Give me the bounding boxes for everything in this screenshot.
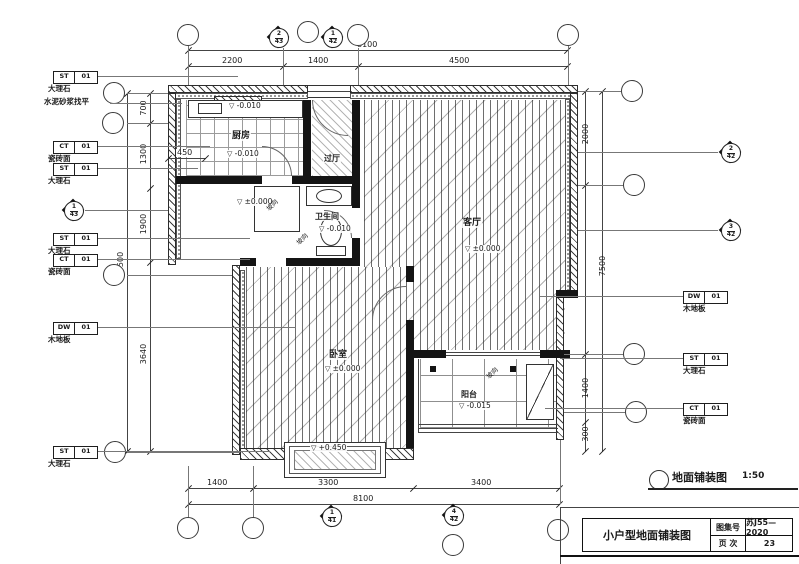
finish-tag-label: 大理石 (48, 460, 71, 468)
dim-left-3: 1900 (140, 208, 148, 240)
axis-bubble (177, 517, 199, 539)
dim-line-bottom-inner (188, 488, 560, 489)
section-marker-bottom-b: 442 (441, 503, 465, 527)
axis-line (127, 452, 240, 453)
finish-tag: CT01 (683, 403, 728, 416)
room-label-hall: 过厅 (323, 155, 341, 163)
wall-kitchen-bath-right (292, 176, 360, 184)
caption-scale: 1:50 (742, 471, 764, 481)
caption-underline (648, 488, 798, 490)
toilet-tank (316, 246, 346, 256)
axis-line (564, 412, 625, 413)
wall-kitchen-bath-left (176, 176, 262, 184)
finish-tag-label: 大理石 (683, 367, 706, 375)
dim-left-2: 1300 (140, 138, 148, 170)
dim-right-3: 300 (582, 418, 590, 450)
dim-right-1: 2000 (582, 118, 590, 150)
finish-tag-label: 木地板 (683, 305, 706, 313)
axis-bubble (623, 174, 645, 196)
page-value: 23 (746, 536, 793, 551)
balcony-rail-1 (418, 424, 558, 425)
dim-left-4: 3640 (140, 338, 148, 370)
note-leveling: 水泥砂浆找平 (44, 98, 89, 106)
axis-bubble (557, 24, 579, 46)
finish-tag: CT01 (53, 254, 98, 267)
tag-leader (98, 238, 250, 239)
finish-tag: DW01 (683, 291, 728, 304)
section-marker-top-b: 142 (320, 25, 344, 49)
kitchen-sink (198, 103, 222, 114)
axis-bubble (547, 519, 569, 541)
washbasin-bowl (316, 189, 342, 203)
wall-right-upper (570, 93, 578, 295)
dim-bottom-3: 3400 (470, 479, 492, 487)
axis-stem (253, 466, 254, 517)
axis-stem (283, 48, 284, 85)
caption-bubble (649, 470, 669, 490)
frame-line-horizontal (560, 507, 799, 508)
axis-bubble (103, 264, 125, 286)
shower (254, 186, 300, 232)
level-balcony: -0.015 (458, 402, 492, 410)
entry-window-midline (308, 91, 350, 92)
finish-tag: ST01 (683, 353, 728, 366)
wall-bedroom-living-upper (406, 266, 414, 282)
drawing-sheet: +0.450 厨房 -0.010 -0.010 过厅 卫生间 -0.010 ±0… (0, 0, 799, 564)
dim-line-bottom-outer (188, 504, 560, 505)
finish-tag-label: 木地板 (48, 336, 71, 344)
axis-line (578, 91, 621, 92)
axis-bubble (297, 21, 319, 43)
axis-bubble (242, 517, 264, 539)
finish-tag-label: 瓷砖面 (48, 155, 71, 163)
balcony-rail-3 (418, 432, 558, 433)
balcony-rail-left (418, 359, 419, 432)
finish-tag: ST01 (53, 71, 98, 84)
axis-stem (188, 46, 189, 85)
axis-bubble (103, 82, 125, 104)
dim-left-1: 700 (140, 92, 148, 124)
level-bay-window: +0.450 (310, 444, 347, 452)
level-living: ±0.000 (464, 245, 501, 253)
finish-tag-label: 大理石 (48, 85, 71, 93)
axis-line (127, 93, 168, 94)
room-label-bedroom: 卧室 (328, 351, 348, 360)
wall-bottom-bedroom-right (384, 448, 414, 460)
dim-line-kitchen-recess (168, 158, 206, 159)
axis-line (127, 275, 232, 276)
insulation-top-living (350, 93, 578, 99)
section-marker-right-b: 342 (718, 218, 742, 242)
wall-top-kitchen (168, 85, 308, 93)
room-label-kitchen: 厨房 (231, 132, 251, 141)
tag-leader (98, 451, 270, 452)
bay-window-inner (294, 450, 376, 470)
tag-leader (560, 358, 683, 359)
dim-line-top-outer (188, 50, 568, 51)
dim-right-total: 7500 (599, 250, 607, 282)
axis-line (578, 230, 718, 231)
axis-stem (358, 48, 359, 85)
tag-leader (98, 168, 198, 169)
dim-kitchen-recess: 450 (176, 149, 193, 157)
level-kitchen-window: -0.010 (228, 102, 262, 110)
tag-leader (98, 327, 296, 328)
dim-top-3: 4500 (448, 57, 470, 65)
axis-stem (560, 440, 561, 504)
frame-line-bottom (560, 555, 799, 557)
section-marker-bottom-a: 141 (319, 504, 343, 528)
wall-living-balcony-left (414, 350, 446, 358)
wall-top-living (350, 85, 578, 93)
title-block-title: 小户型地面铺装图 (584, 519, 710, 551)
tag-leader (545, 408, 683, 409)
level-bath: -0.010 (318, 225, 352, 233)
finish-tag: ST01 (53, 233, 98, 246)
tag-leader (98, 259, 250, 260)
axis-bubble (347, 24, 369, 46)
tag-leader (540, 296, 683, 297)
wall-right-lower (556, 295, 564, 440)
page-label: 页 次 (711, 536, 745, 551)
balcony-slider-line1 (446, 352, 540, 353)
section-marker-top-a: 243 (266, 25, 290, 49)
balcony-rail-2 (418, 428, 558, 429)
insulation-left-lower (240, 270, 245, 450)
wall-left-lower (232, 265, 240, 455)
finish-tag-label: 瓷砖面 (683, 417, 706, 425)
room-label-bath: 卫生间 (314, 213, 340, 221)
finish-tag: DW01 (53, 322, 98, 335)
axis-line (578, 152, 718, 153)
tag-leader (98, 76, 238, 77)
wall-bottom-bedroom-left (240, 448, 286, 460)
washing-machine (526, 364, 554, 420)
atlas-value: 苏J55—2020 (746, 519, 793, 535)
axis-stem (188, 466, 189, 517)
wall-left-upper (168, 93, 176, 265)
balcony-post-left (430, 366, 436, 372)
finish-tag: ST01 (53, 446, 98, 459)
axis-bubble (442, 534, 464, 556)
finish-tag-label: 瓷砖面 (48, 268, 71, 276)
insulation-right-upper (565, 99, 570, 291)
axis-stem (568, 46, 569, 85)
wall-bedroom-living-lower (406, 320, 414, 448)
room-label-living: 客厅 (462, 219, 482, 228)
dim-top-1: 2200 (221, 57, 243, 65)
axis-bubble (623, 343, 645, 365)
dim-line-top-inner (188, 66, 568, 67)
level-kitchen: -0.010 (226, 150, 260, 158)
dim-right-2: 1400 (582, 372, 590, 404)
finish-tag: CT01 (53, 141, 98, 154)
level-bedroom: ±0.000 (324, 365, 361, 373)
axis-bubble (621, 80, 643, 102)
marker-leader-left (85, 210, 168, 211)
dim-top-2: 1400 (307, 57, 329, 65)
atlas-label: 图集号 (711, 519, 745, 535)
section-marker-left: 143 (61, 198, 85, 222)
wall-bath-right-upper (352, 100, 360, 208)
dim-bottom-total: 8100 (352, 495, 374, 503)
axis-line (578, 185, 623, 186)
section-marker-right-a: 242 (718, 140, 742, 164)
axis-line (564, 354, 623, 355)
room-label-balcony: 阳台 (460, 391, 478, 399)
balcony-post-right (510, 366, 516, 372)
wall-kitchen-right (303, 100, 311, 176)
finish-tag: ST01 (53, 163, 98, 176)
axis-bubble (625, 401, 647, 423)
axis-line (127, 123, 168, 124)
wall-bath-bottom-right (286, 258, 360, 266)
axis-bubble (177, 24, 199, 46)
tag-leader (110, 103, 182, 104)
balcony-slider-line2 (446, 355, 540, 356)
finish-tag-label: 大理石 (48, 177, 71, 185)
dim-bottom-2: 3300 (317, 479, 339, 487)
tag-leader (98, 146, 210, 147)
axis-bubble (102, 112, 124, 134)
dim-bottom-1: 1400 (206, 479, 228, 487)
axis-bubble (104, 441, 126, 463)
caption-title: 地面铺装图 (672, 469, 727, 485)
